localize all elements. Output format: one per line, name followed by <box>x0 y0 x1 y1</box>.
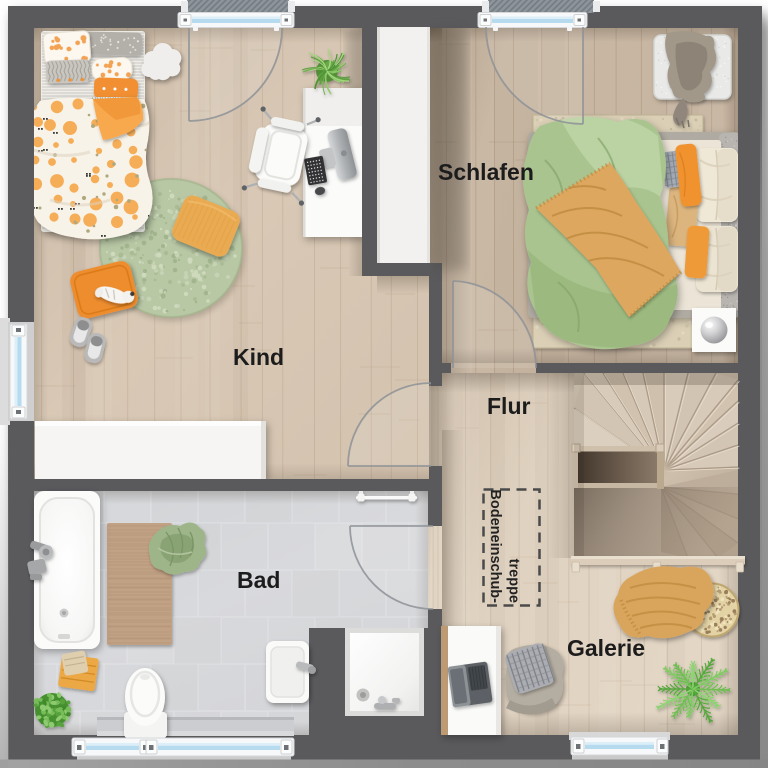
svg-text:treppe: treppe <box>506 559 522 603</box>
svg-text:Bodeneinschub-: Bodeneinschub- <box>487 489 503 603</box>
svg-text:Schlafen: Schlafen <box>438 159 534 185</box>
svg-text:Flur: Flur <box>487 393 530 419</box>
svg-text:Galerie: Galerie <box>567 635 645 661</box>
svg-text:Kind: Kind <box>233 344 284 370</box>
svg-text:Bad: Bad <box>237 567 280 593</box>
